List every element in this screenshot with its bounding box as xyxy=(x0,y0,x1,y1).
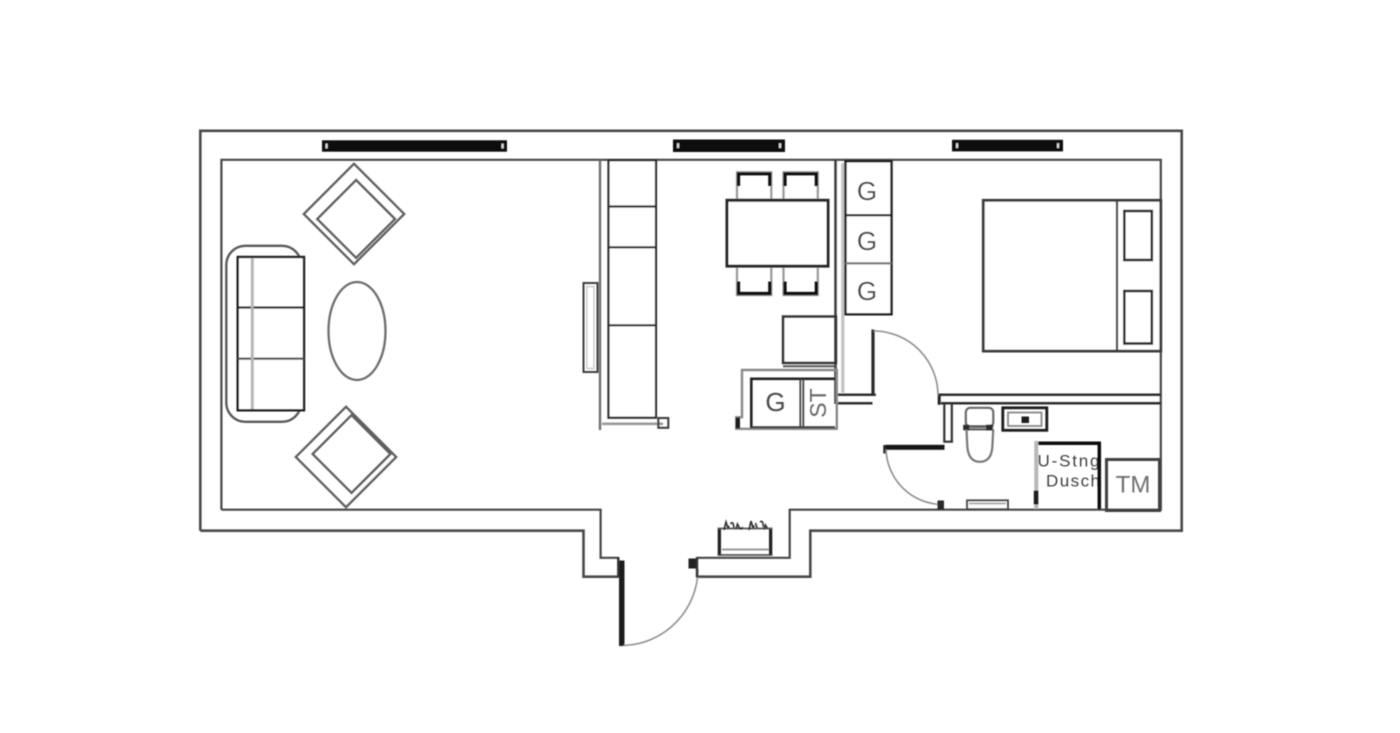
svg-text:ST: ST xyxy=(805,388,831,417)
svg-text:U-Stng: U-Stng xyxy=(1038,452,1100,471)
svg-text:Dusch: Dusch xyxy=(1046,472,1100,491)
svg-text:G: G xyxy=(765,387,785,417)
svg-text:TM: TM xyxy=(1116,472,1151,499)
svg-text:G: G xyxy=(857,226,877,256)
svg-text:G: G xyxy=(857,176,877,206)
svg-text:G: G xyxy=(857,276,877,306)
